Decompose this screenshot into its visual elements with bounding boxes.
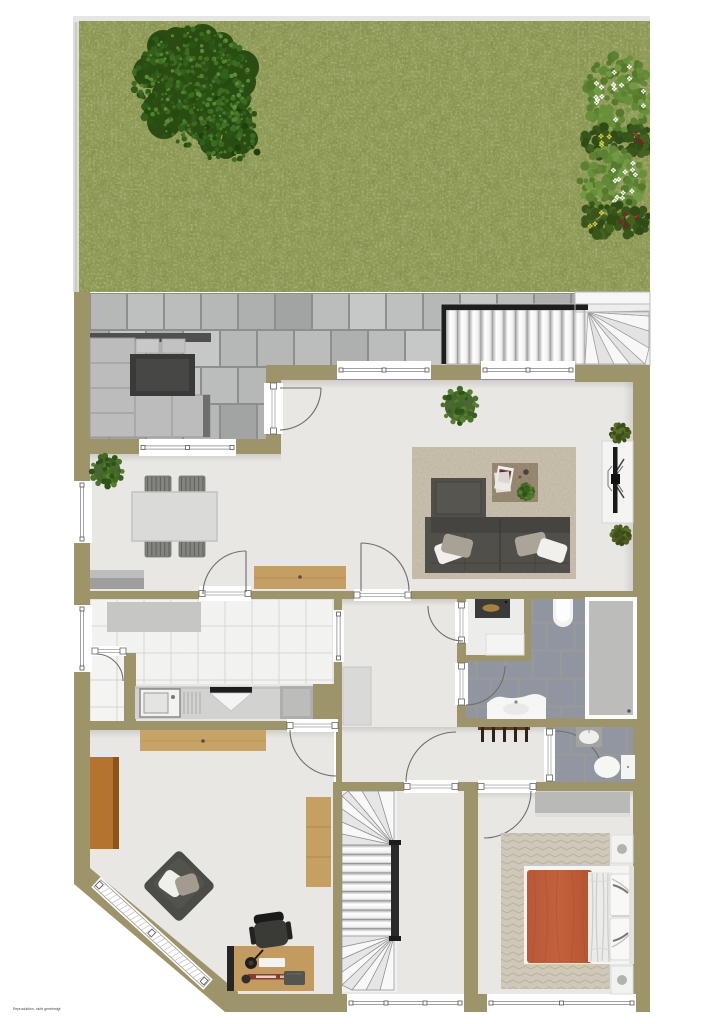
svg-text:Reproduktion, nicht genehmigt: Reproduktion, nicht genehmigt [13, 1007, 61, 1011]
